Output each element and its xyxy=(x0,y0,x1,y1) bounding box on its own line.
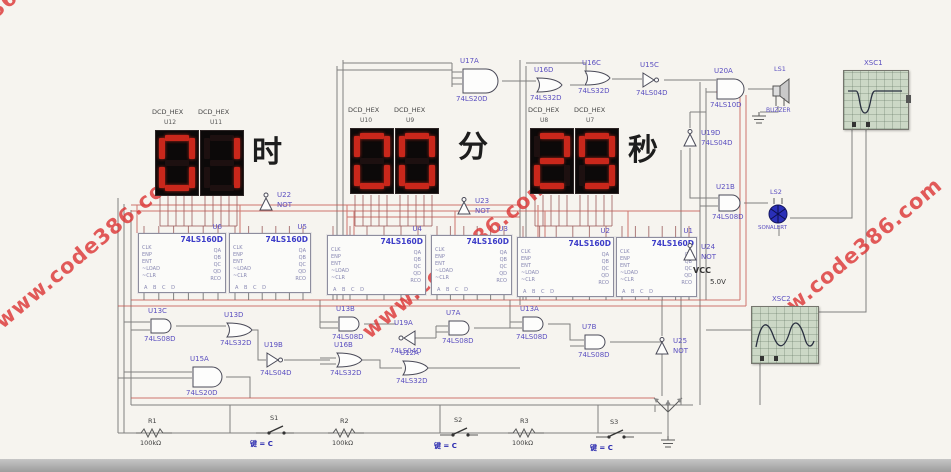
segment-d xyxy=(585,183,609,189)
ic-ref: U1 xyxy=(683,227,693,235)
second-unit-label: 秒 xyxy=(628,136,658,166)
decoder-label: DCD_HEX xyxy=(528,106,559,114)
switch-key-label: 键 = C xyxy=(434,441,457,451)
gate-ref: U15C xyxy=(640,61,659,69)
gate-u16b[interactable]: U16B 74LS32D xyxy=(336,352,364,368)
inverter-up-icon xyxy=(654,336,670,356)
or-gate-icon xyxy=(226,322,254,338)
gate-part-label: 74LS04D xyxy=(701,139,733,147)
segment-g xyxy=(585,158,609,164)
ic-part-label: 74LS160D xyxy=(381,237,424,246)
schematic-canvas: www.code386.com www.code386.com www.code… xyxy=(0,0,951,472)
ic-pins: QA QB QC QD RCO xyxy=(210,248,221,283)
resistor-ref: R2 xyxy=(340,417,349,425)
vcc-label: VCC xyxy=(693,266,711,275)
segment-c xyxy=(384,165,390,186)
segment-d xyxy=(540,183,564,189)
segment-g xyxy=(360,158,384,164)
gate-ref: U20A xyxy=(714,67,733,75)
gate-ref: U13C xyxy=(148,307,167,315)
decoder-ref: U7 xyxy=(586,117,594,124)
counter-ic-u3[interactable]: U3 74LS160D CLK ENP ENT ~LOAD ~CLR QA QB… xyxy=(431,235,512,295)
decoder-label: DCD_HEX xyxy=(198,108,229,116)
ic-pins: CLK ENP ENT ~LOAD ~CLR xyxy=(142,245,160,280)
segment-e xyxy=(354,165,360,186)
resistor-icon xyxy=(136,427,172,439)
gate-u19b[interactable]: U19B 74LS04D xyxy=(266,352,286,368)
resistor-ref: R1 xyxy=(148,417,157,425)
inverter-up-icon xyxy=(258,190,274,212)
gate-part-label: NOT xyxy=(673,347,688,355)
switch-key-label: 键 = C xyxy=(590,443,613,453)
instrument-ref: XSC2 xyxy=(772,295,791,303)
signal-source[interactable] xyxy=(650,390,686,414)
gate-u21b[interactable]: U21B 74LS08D xyxy=(718,194,744,212)
segment-f xyxy=(204,138,210,159)
segment-b xyxy=(189,138,195,159)
switch-icon xyxy=(596,428,634,444)
gate-ref: U12A xyxy=(400,349,419,357)
gate-ref: U7A xyxy=(446,309,460,317)
switch-s2[interactable]: S2 键 = C xyxy=(440,426,478,442)
and-gate-icon xyxy=(192,366,226,388)
ic-pins: A B C D xyxy=(235,285,268,291)
decoder-ref: U8 xyxy=(540,117,548,124)
segment-f xyxy=(399,136,405,157)
ic-pins: QA QB QC QD RCO xyxy=(598,252,609,287)
gate-u24[interactable]: U24 NOT xyxy=(682,242,698,262)
scope-terminal[interactable] xyxy=(866,122,870,127)
gate-ref: U7B xyxy=(582,323,596,331)
or-gate-icon xyxy=(536,77,564,93)
gate-part-label: 74LS08D xyxy=(712,213,744,221)
speaker-ref: LS1 xyxy=(774,65,786,73)
ic-pins: CLK ENP ENT ~LOAD ~CLR xyxy=(331,247,349,282)
instrument-ref: XSC1 xyxy=(864,59,883,67)
gate-part-label: 74LS32D xyxy=(396,377,428,385)
seven-segment-display[interactable] xyxy=(395,128,439,194)
gate-part-label: 74LS08D xyxy=(442,337,474,345)
ic-part-label: 74LS160D xyxy=(266,235,309,244)
ic-pins: A B C D xyxy=(622,289,655,295)
switch-ref: S1 xyxy=(270,414,278,422)
segment-a xyxy=(585,133,609,139)
gate-part-label: NOT xyxy=(701,253,716,261)
ic-part-label: 74LS160D xyxy=(569,239,612,248)
gate-u16c[interactable]: U16C 74LS32D xyxy=(584,70,612,86)
ic-part-label: 74LS160D xyxy=(181,235,224,244)
or-gate-icon xyxy=(402,360,430,376)
segment-b xyxy=(234,138,240,159)
gate-u19d[interactable]: U19D 74LS04D xyxy=(682,128,698,148)
seven-segment-display[interactable] xyxy=(200,130,244,196)
switch-key-label: 键 = C xyxy=(250,439,273,449)
segment-b xyxy=(384,136,390,157)
gate-part-label: NOT xyxy=(277,201,292,209)
ground-symbol[interactable] xyxy=(660,436,676,448)
ic-pins: A B C D xyxy=(144,285,177,291)
gate-ref: U19A xyxy=(394,319,413,327)
resistor-value: 100kΩ xyxy=(140,439,161,447)
resistor-ref: R3 xyxy=(520,417,529,425)
segment-b xyxy=(564,136,570,157)
gate-u25[interactable]: U25 NOT xyxy=(654,336,670,356)
segment-c xyxy=(609,165,615,186)
segment-b xyxy=(609,136,615,157)
segment-e xyxy=(399,165,405,186)
gate-ref: U16B xyxy=(334,341,353,349)
inverter-icon xyxy=(642,72,662,88)
sonalert-icon xyxy=(766,198,790,224)
gate-u13c[interactable]: U13C 74LS08D xyxy=(150,318,176,334)
gate-part-label: 74LS08D xyxy=(516,333,548,341)
ic-ref: U4 xyxy=(412,225,422,233)
gate-u15c[interactable]: U15C 74LS04D xyxy=(642,72,662,88)
alarm-ref: LS2 xyxy=(770,188,782,196)
gate-ref: U13B xyxy=(336,305,355,313)
ic-pins: CLK ENP ENT ~LOAD ~CLR xyxy=(620,249,638,284)
resistor-r3[interactable]: R3 100kΩ xyxy=(508,427,544,439)
segment-d xyxy=(405,183,429,189)
alarm-part-label: SONALERT xyxy=(758,225,787,231)
gate-ref: U24 xyxy=(701,243,715,251)
resistor-value: 100kΩ xyxy=(512,439,533,447)
segment-f xyxy=(579,136,585,157)
ic-ref: U5 xyxy=(297,223,307,231)
inverter-left-icon xyxy=(396,330,416,346)
segment-e xyxy=(579,165,585,186)
and-gate-icon xyxy=(150,318,176,334)
segment-g xyxy=(405,158,429,164)
seven-segment-display[interactable] xyxy=(530,128,574,194)
gate-part-label: 74LS08D xyxy=(144,335,176,343)
segment-g xyxy=(540,158,564,164)
gate-ref: U16C xyxy=(582,59,601,67)
ic-pins: A B C D xyxy=(333,287,366,293)
segment-c xyxy=(564,165,570,186)
ic-pins: QA QB QC QD RCO xyxy=(496,250,507,285)
counter-ic-u5[interactable]: U5 74LS160D CLK ENP ENT ~LOAD ~CLR QA QB… xyxy=(229,233,311,293)
ic-ref: U2 xyxy=(600,227,610,235)
segment-c xyxy=(429,165,435,186)
gate-ref: U21B xyxy=(716,183,735,191)
ic-pins: CLK ENP ENT ~LOAD ~CLR xyxy=(435,247,453,282)
resistor-r2[interactable]: R2 100kΩ xyxy=(328,427,364,439)
gate-ref: U16D xyxy=(534,66,553,74)
ic-ref: U3 xyxy=(498,225,508,233)
gate-part-label: 74LS32D xyxy=(330,369,362,377)
scope-terminal[interactable] xyxy=(906,95,911,103)
counter-ic-u6[interactable]: U6 74LS160D CLK ENP ENT ~LOAD ~CLR QA QB… xyxy=(138,233,226,293)
scope-terminal[interactable] xyxy=(774,356,778,361)
seven-segment-display[interactable] xyxy=(155,130,199,196)
resistor-icon xyxy=(328,427,364,439)
gate-u22[interactable]: U22 NOT xyxy=(258,190,274,212)
counter-ic-u2[interactable]: U2 74LS160D CLK ENP ENT ~LOAD ~CLR QA QB… xyxy=(517,237,614,297)
segment-a xyxy=(540,133,564,139)
segment-d xyxy=(360,183,384,189)
segment-c xyxy=(189,167,195,188)
decoder-ref: U9 xyxy=(406,117,414,124)
inverter-up-icon xyxy=(456,196,472,216)
segment-c xyxy=(234,167,240,188)
ic-pins: CLK ENP ENT ~LOAD ~CLR xyxy=(521,249,539,284)
counter-ic-u4[interactable]: U4 74LS160D CLK ENP ENT ~LOAD ~CLR QA QB… xyxy=(327,235,426,295)
decoder-label: DCD_HEX xyxy=(348,106,379,114)
gate-u20a[interactable]: U20A 74LS10D xyxy=(716,78,748,100)
bottom-edge-bar xyxy=(0,459,951,472)
oscilloscope-xsc2[interactable]: XSC2 xyxy=(751,306,819,364)
minute-unit-label: 分 xyxy=(458,133,488,163)
segment-a xyxy=(360,133,384,139)
segment-f xyxy=(159,138,165,159)
gate-ref: U13D xyxy=(224,311,243,319)
hour-unit-label: 时 xyxy=(252,138,282,168)
ground-symbol[interactable] xyxy=(751,112,767,124)
segment-d xyxy=(165,185,189,191)
gate-u13a[interactable]: U13A 74LS08D xyxy=(522,316,548,332)
decoder-label: DCD_HEX xyxy=(574,106,605,114)
ic-pins: A B C D xyxy=(523,289,556,295)
gate-part-label: 74LS08D xyxy=(578,351,610,359)
gate-ref: U17A xyxy=(460,57,479,65)
scope-waveform xyxy=(844,71,908,129)
segment-f xyxy=(354,136,360,157)
decoder-label: DCD_HEX xyxy=(394,106,425,114)
speaker-icon xyxy=(770,76,792,106)
gate-part-label: 74LS04D xyxy=(260,369,292,377)
seven-segment-display[interactable] xyxy=(350,128,394,194)
segment-d xyxy=(210,185,234,191)
resistor-r1[interactable]: R1 100kΩ xyxy=(136,427,172,439)
or-gate-icon xyxy=(336,352,364,368)
gate-u13d[interactable]: U13D 74LS32D xyxy=(226,322,254,338)
gate-u23[interactable]: U23 NOT xyxy=(456,196,472,216)
resistor-icon xyxy=(508,427,544,439)
gate-ref: U19B xyxy=(264,341,283,349)
segment-a xyxy=(210,135,234,141)
segment-e xyxy=(534,165,540,186)
ic-pins: CLK ENP ENT ~LOAD ~CLR xyxy=(233,245,251,280)
ic-ref: U6 xyxy=(212,223,222,231)
segment-a xyxy=(165,135,189,141)
inverter-icon xyxy=(266,352,286,368)
and-gate-icon xyxy=(448,320,474,336)
speaker-part-label: BUZZER xyxy=(766,107,791,114)
or-gate-icon xyxy=(584,70,612,86)
alarm-buzzer-ls2[interactable]: LS2 SONALERT xyxy=(766,198,790,224)
gate-ref: U22 xyxy=(277,191,291,199)
decoder-ref: U11 xyxy=(210,119,222,126)
switch-icon xyxy=(256,424,294,440)
gate-ref: U19D xyxy=(701,129,720,137)
gate-part-label: 74LS20D xyxy=(456,95,488,103)
scope-waveform xyxy=(752,307,818,363)
segment-g xyxy=(210,160,234,166)
gate-u15a[interactable]: U15A 74LS20D xyxy=(192,366,226,388)
ic-pins: QA QB QC QD RCO xyxy=(410,250,421,285)
ground-icon xyxy=(751,112,767,124)
segment-e xyxy=(204,167,210,188)
gate-part-label: NOT xyxy=(475,207,490,215)
gate-ref: U13A xyxy=(520,305,539,313)
gate-u13b[interactable]: U13B 74LS08D xyxy=(338,316,364,332)
gate-part-label: 74LS20D xyxy=(186,389,218,397)
and-gate-icon xyxy=(584,334,610,350)
ground-icon xyxy=(660,436,676,448)
oscilloscope-xsc1[interactable]: XSC1 xyxy=(843,70,909,130)
switch-s3[interactable]: S3 键 = C xyxy=(596,428,634,444)
vcc-voltage: 5.0V xyxy=(710,278,726,286)
segment-e xyxy=(159,167,165,188)
ic-pins: QA QB QC QD RCO xyxy=(295,248,306,283)
gate-ref: U23 xyxy=(475,197,489,205)
segment-b xyxy=(429,136,435,157)
gate-part-label: 74LS32D xyxy=(220,339,252,347)
speaker-ls1[interactable]: LS1 BUZZER xyxy=(770,76,792,106)
gate-u12a[interactable]: U12A 74LS32D xyxy=(402,360,430,376)
gate-part-label: 74LS10D xyxy=(710,101,742,109)
ic-pins: A B C D xyxy=(437,287,470,293)
decoder-ref: U12 xyxy=(164,119,176,126)
gate-part-label: 74LS32D xyxy=(578,87,610,95)
segment-a xyxy=(405,133,429,139)
gate-u7b[interactable]: U7B 74LS08D xyxy=(584,334,610,350)
decoder-label: DCD_HEX xyxy=(152,108,183,116)
switch-ref: S3 xyxy=(610,418,618,426)
and-gate-icon xyxy=(338,316,364,332)
resistor-value: 100kΩ xyxy=(332,439,353,447)
gate-ref: U25 xyxy=(673,337,687,345)
segment-f xyxy=(534,136,540,157)
scope-terminal[interactable] xyxy=(760,356,764,361)
gate-part-label: 74LS32D xyxy=(530,94,562,102)
switch-ref: S2 xyxy=(454,416,462,424)
seven-segment-display[interactable] xyxy=(575,128,619,194)
signal-source-icon xyxy=(650,390,686,414)
ic-part-label: 74LS160D xyxy=(467,237,510,246)
and-gate-icon xyxy=(522,316,548,332)
gate-u16d[interactable]: U16D 74LS32D xyxy=(536,77,564,93)
and-gate-icon xyxy=(716,78,748,100)
inverter-up-icon xyxy=(682,242,698,262)
and-gate-icon xyxy=(462,68,502,94)
decoder-ref: U10 xyxy=(360,117,372,124)
scope-terminal[interactable] xyxy=(852,122,856,127)
gate-part-label: 74LS08D xyxy=(332,333,364,341)
gate-u17a[interactable]: U17A 74LS20D xyxy=(462,68,502,94)
inverter-up-icon xyxy=(682,128,698,148)
gate-u7a[interactable]: U7A 74LS08D xyxy=(448,320,474,336)
and-gate-icon xyxy=(718,194,744,212)
gate-ref: U15A xyxy=(190,355,209,363)
segment-g xyxy=(165,160,189,166)
switch-s1[interactable]: S1 键 = C xyxy=(256,424,294,440)
gate-part-label: 74LS04D xyxy=(636,89,668,97)
switch-icon xyxy=(440,426,478,442)
gate-u19a[interactable]: U19A 74LS04D xyxy=(396,330,416,346)
